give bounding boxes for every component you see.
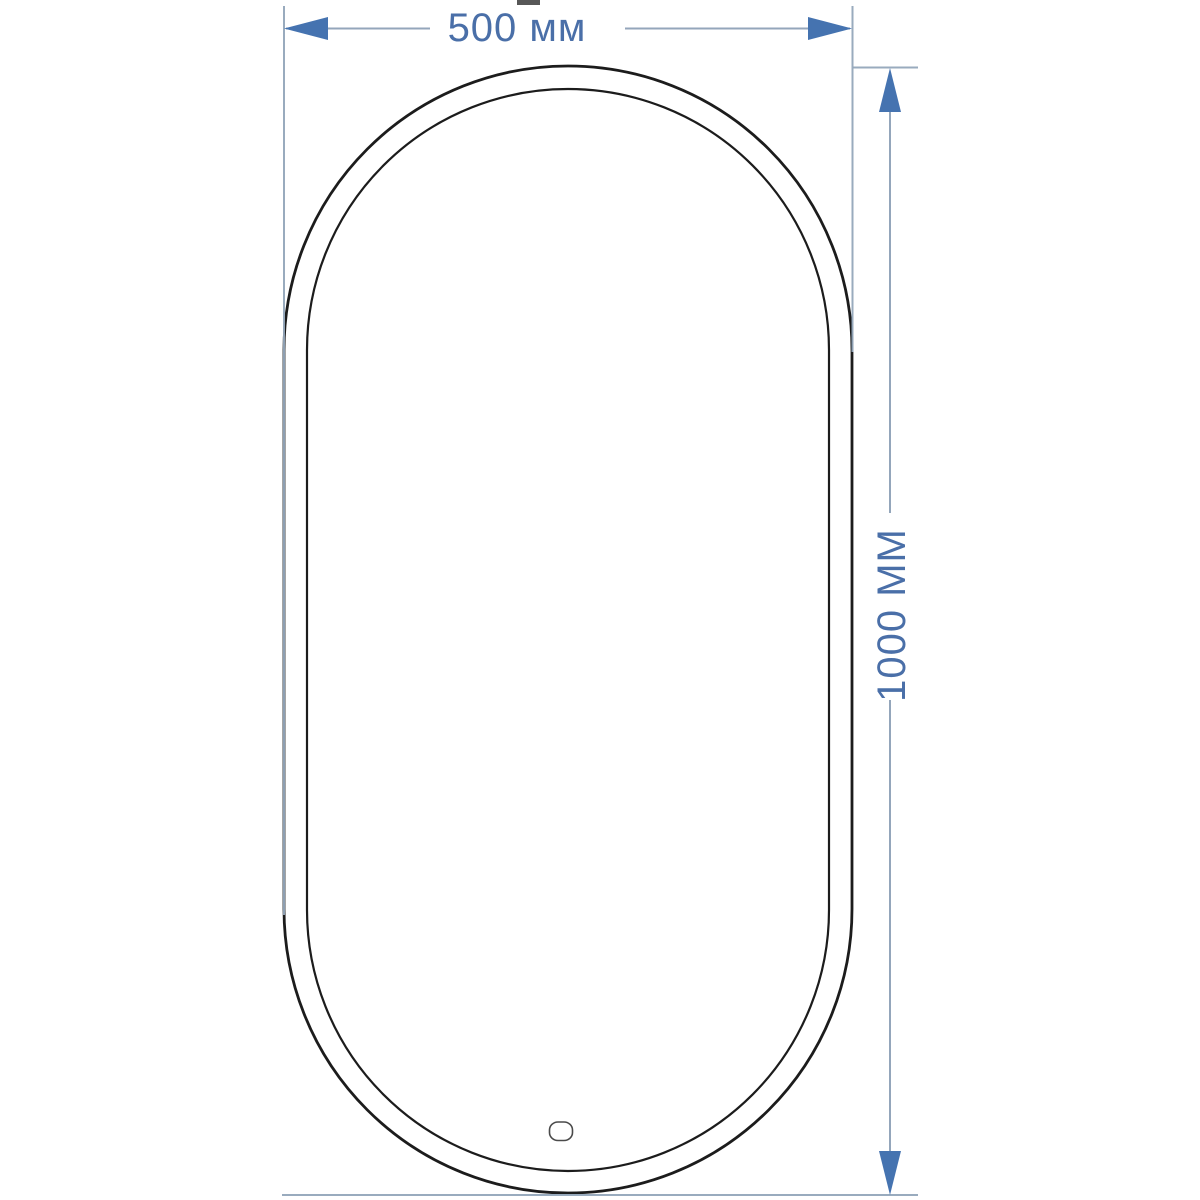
width-arrow-right-icon xyxy=(808,17,852,40)
height-dimension-label: 1000 ММ xyxy=(870,528,914,702)
dimension-drawing-canvas: 500 мм 1000 ММ xyxy=(0,0,1200,1200)
width-arrow-left-icon xyxy=(284,17,328,40)
height-arrow-down-icon xyxy=(879,1151,901,1195)
mirror-outer-contour xyxy=(284,66,852,1193)
width-dimension-label: 500 мм xyxy=(448,6,587,50)
touch-sensor-circle xyxy=(550,1122,573,1141)
top-edge-artifact xyxy=(517,0,540,5)
mirror-dimension-drawing: 500 мм 1000 ММ xyxy=(0,0,1200,1200)
height-arrow-up-icon xyxy=(879,68,901,112)
